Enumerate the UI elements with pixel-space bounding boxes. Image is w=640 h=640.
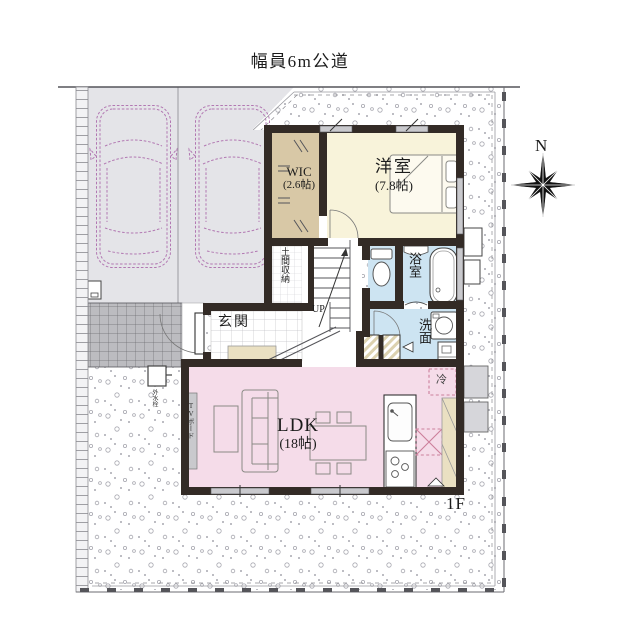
wall [358,238,464,246]
doma-storage-label: 土間収納 [280,247,289,283]
bathroom-label: 浴室 [408,252,421,278]
tv-board-label: TVボード [187,402,194,439]
meter-box-base [91,293,98,297]
approach-tiles [88,303,182,367]
wall [203,303,211,315]
floor-plan-canvas: 幅員6m公道 WIC (2.6帖) 洋室 (7.8帖) 浴室 洗面 玄関 土間収… [0,0,640,640]
wall [356,331,364,367]
washing-machine-icon [431,312,457,339]
wall [362,301,404,309]
equipment-box [464,260,480,284]
wic-label: WIC [286,165,311,178]
ldk-size-label: (18帖) [279,438,316,452]
wall [264,125,272,311]
window [396,126,428,132]
window [457,248,463,300]
kitchen-icon [384,395,416,489]
refrigerator-label: 冷 [436,375,447,386]
bathtub-icon [430,248,457,305]
wall [203,303,272,311]
washroom-label: 洗面 [418,318,431,344]
wall [379,335,383,363]
wall [264,238,328,246]
floor-label: 1F [446,495,466,512]
window [457,178,463,234]
wall [319,133,327,216]
stairs-up-label: UP [312,305,325,315]
wall [362,238,370,260]
wall [395,244,403,304]
wall [264,125,464,133]
wall [264,303,314,311]
wall [181,359,302,367]
floor-plan-drawing [0,0,640,640]
ac-unit [464,402,488,432]
wic-door-opening [319,216,327,238]
compass-icon [511,153,575,217]
outdoor-faucet-icon [148,366,166,386]
outdoor-faucet-label: 外水栓 [151,389,157,407]
water-heater [464,228,482,256]
wall [428,301,464,309]
compass-north-label: N [535,137,547,154]
ac-unit [464,366,488,398]
wall [360,359,464,367]
entrance-label: 玄関 [218,316,250,330]
ldk-label: LDK [277,416,319,435]
western-room-label: 洋室 [375,158,413,175]
wall [308,238,314,308]
wic-size-label: (2.6帖) [283,180,315,191]
left-boundary-strip [76,87,88,592]
road-label: 幅員6m公道 [251,53,350,70]
window [320,126,352,132]
western-room-size-label: (7.8帖) [375,179,413,192]
toilet-icon [371,249,392,286]
